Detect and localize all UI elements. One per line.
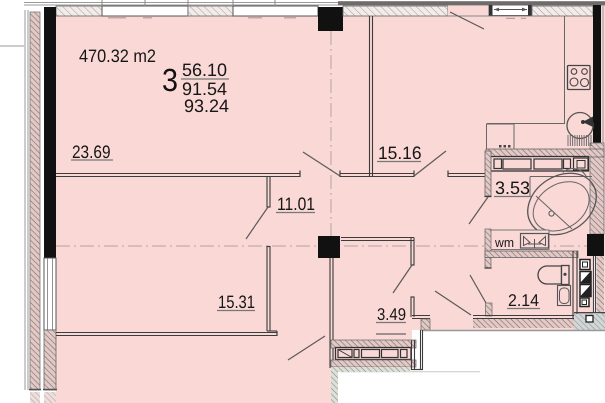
svg-text:2.14: 2.14 bbox=[508, 291, 539, 310]
svg-text:11.01: 11.01 bbox=[277, 194, 315, 214]
svg-text:3: 3 bbox=[162, 62, 178, 98]
svg-text:15.16: 15.16 bbox=[378, 143, 422, 163]
svg-text:23.69: 23.69 bbox=[72, 142, 111, 162]
svg-text:15.31: 15.31 bbox=[218, 292, 255, 312]
svg-text:470.32 m2: 470.32 m2 bbox=[79, 46, 156, 66]
svg-text:wm: wm bbox=[494, 235, 514, 250]
svg-text:3.49: 3.49 bbox=[377, 305, 406, 324]
svg-text:93.24: 93.24 bbox=[184, 96, 229, 116]
svg-text:3.53: 3.53 bbox=[495, 178, 530, 198]
svg-text:56.10: 56.10 bbox=[182, 60, 227, 80]
